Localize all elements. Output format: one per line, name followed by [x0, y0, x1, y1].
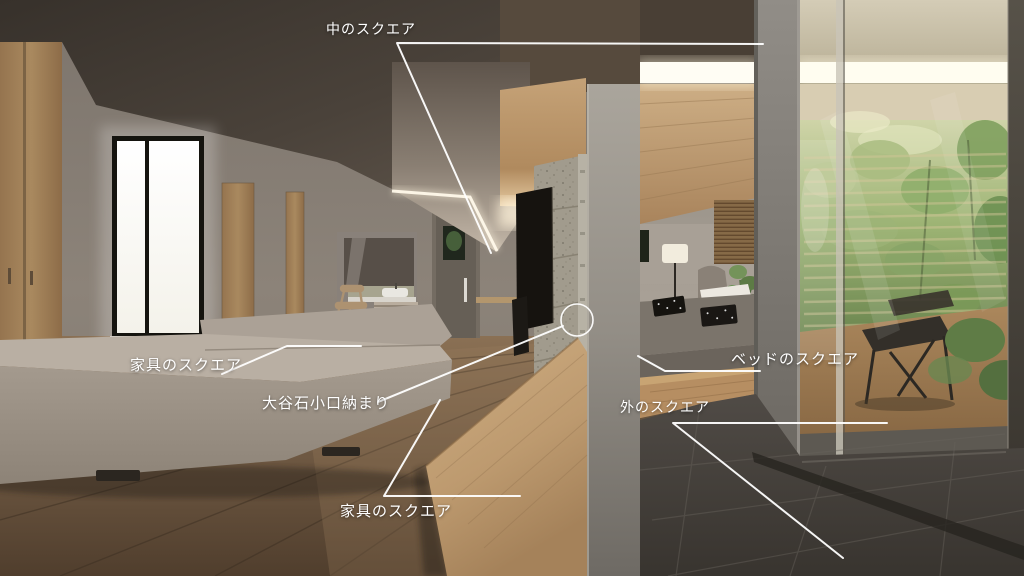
- exterior-soffit: [800, 0, 1010, 64]
- glass-stile: [836, 0, 843, 506]
- slat-feature-wall: [714, 200, 756, 264]
- stone-end-face: [587, 84, 640, 576]
- bedroom-cove-light: [636, 58, 760, 88]
- label-oya-stone-edge-detail: 大谷石小口納まり: [262, 392, 390, 413]
- label-inner-square: 中のスクエア: [326, 19, 416, 39]
- interior-render: [0, 0, 1024, 576]
- label-furniture-square-bottom: 家具のスクエア: [340, 500, 452, 521]
- label-bed-square: ベッドのスクエア: [731, 348, 859, 369]
- cushion: [700, 304, 738, 327]
- label-furniture-square-left: 家具のスクエア: [130, 354, 242, 375]
- render-canvas: 中のスクエア 家具のスクエア 大谷石小口納まり 家具のスクエア ベッドのスクエア…: [0, 0, 1024, 576]
- exterior-cove-light: [800, 62, 1008, 83]
- bush: [945, 318, 1005, 362]
- label-outside-square: 外のスクエア: [620, 397, 710, 417]
- window: [100, 126, 216, 350]
- sink-basin: [382, 288, 408, 297]
- door-right: [286, 192, 304, 320]
- speaker: [512, 296, 529, 356]
- closet-doors: [0, 42, 62, 342]
- window-mullion: [145, 141, 149, 333]
- door-left: [222, 183, 254, 322]
- door-handle: [464, 278, 467, 302]
